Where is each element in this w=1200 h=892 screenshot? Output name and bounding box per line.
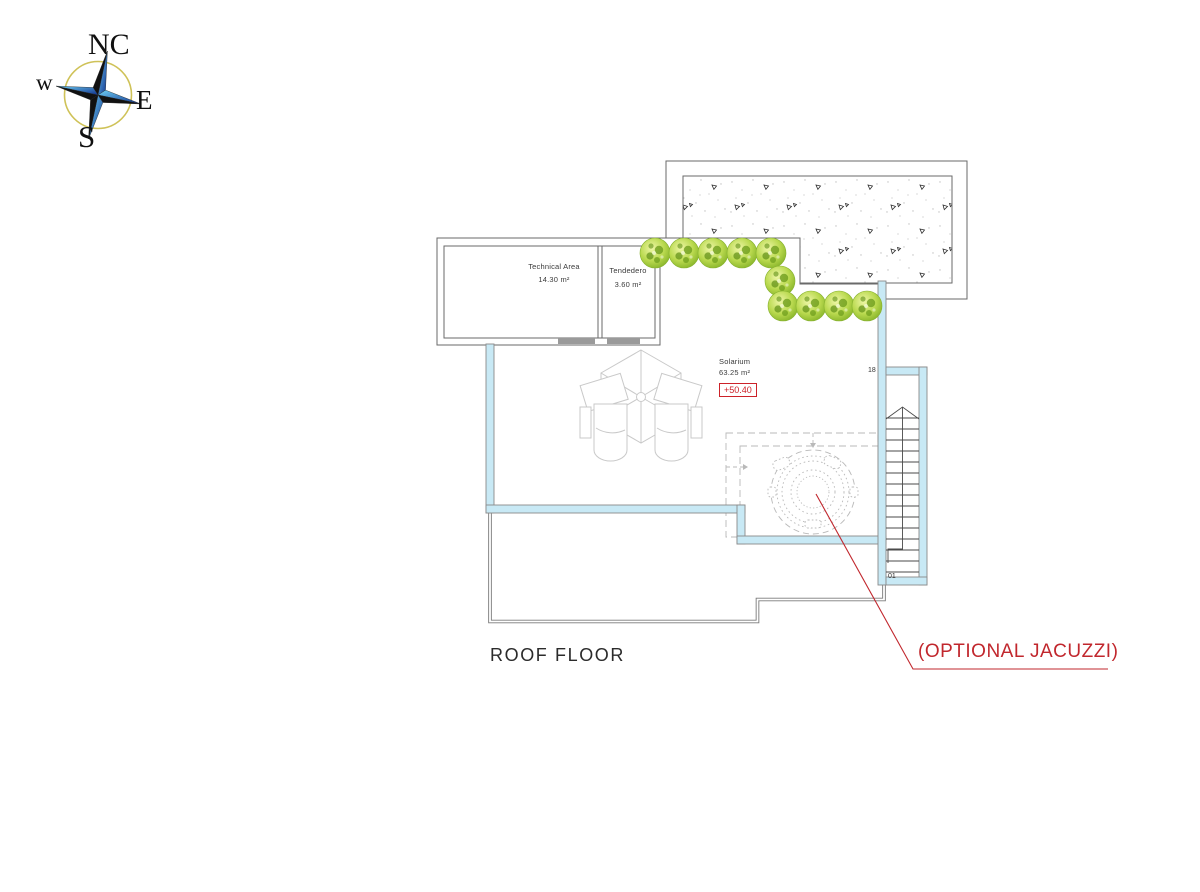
terrace-outline: [490, 513, 884, 622]
compass-north-label: NC: [88, 28, 130, 62]
room-label-technical-area: Technical Area: [504, 263, 604, 271]
jacuzzi-annotation: (OPTIONAL JACUZZI): [918, 641, 1118, 663]
patio-furniture: [580, 350, 702, 461]
plan-svg: [0, 0, 1200, 892]
compass-south-label: S: [78, 119, 95, 155]
gravel-roof-outline: [660, 161, 967, 299]
elevation-marker: +50.40: [719, 383, 757, 397]
compass-east-label: E: [136, 85, 153, 116]
technical-block-walls: [437, 238, 660, 345]
floor-title: ROOF FLOOR: [490, 645, 625, 666]
room-area-solarium: 63.25 m²: [719, 369, 750, 377]
staircase: [886, 407, 919, 572]
compass-rose-icon: [56, 51, 141, 139]
room-area-tendedero: 3.60 m²: [597, 281, 659, 289]
room-label-tendedero: Tendedero: [597, 267, 659, 275]
stair-step-top-label: 18: [868, 367, 876, 374]
jacuzzi-outline: [726, 433, 878, 537]
compass-west-label: w: [36, 70, 53, 96]
room-area-technical-area: 14.30 m²: [504, 276, 604, 284]
roof-floor-plan: NC w E S Technical Area 14.30 m² Tendede…: [0, 0, 1200, 892]
stair-step-bottom-label: 01: [888, 573, 896, 580]
room-label-solarium: Solarium: [719, 358, 750, 366]
